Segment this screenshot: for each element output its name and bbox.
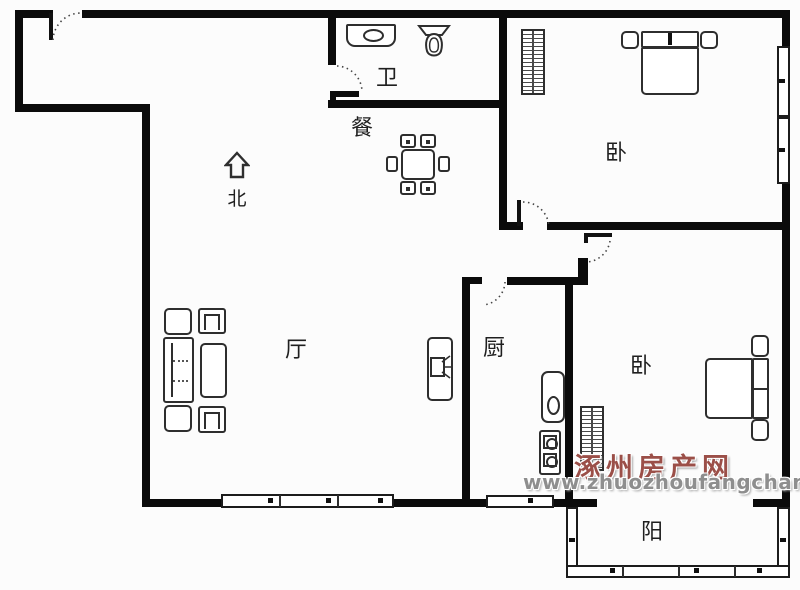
door-swing-arcs xyxy=(0,0,800,590)
floor-plan: 北 卫 餐 卧 厅 厨 卧 阳 涿州房产网 www.zhuozhoufangch… xyxy=(0,0,800,590)
entry-door-swing xyxy=(53,13,81,40)
bedroom2-door-swing xyxy=(587,241,610,262)
bathroom-door-swing xyxy=(337,66,362,91)
tv-icon xyxy=(428,352,452,386)
bedroom1-door-swing xyxy=(523,202,549,227)
toilet-icon xyxy=(417,24,451,62)
kitchen-door-swing xyxy=(483,282,505,305)
